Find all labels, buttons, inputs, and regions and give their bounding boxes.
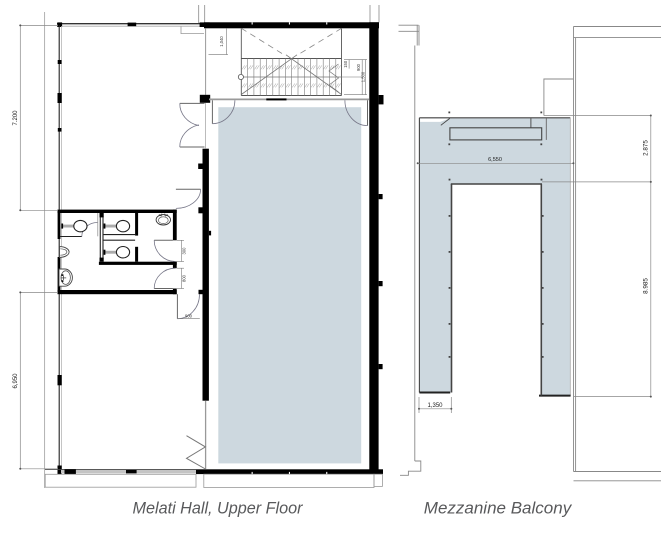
- svg-text:1,350: 1,350: [427, 403, 443, 409]
- svg-text:900: 900: [356, 63, 361, 71]
- svg-text:Mezzanine Balcony: Mezzanine Balcony: [424, 499, 573, 518]
- svg-text:8.985: 8.985: [642, 278, 649, 294]
- svg-text:2.875: 2.875: [642, 140, 649, 156]
- svg-text:300: 300: [182, 247, 187, 255]
- svg-text:6,550: 6,550: [488, 157, 502, 163]
- svg-text:150: 150: [343, 60, 348, 68]
- svg-text:7.200: 7.200: [13, 110, 19, 126]
- svg-text:Melati Hall, Upper Floor: Melati Hall, Upper Floor: [132, 500, 303, 518]
- svg-text:6,950: 6,950: [13, 373, 19, 389]
- svg-text:1,500: 1,500: [360, 71, 365, 82]
- svg-text:800: 800: [182, 274, 187, 282]
- svg-text:1,040: 1,040: [219, 36, 224, 47]
- svg-text:900: 900: [185, 314, 193, 319]
